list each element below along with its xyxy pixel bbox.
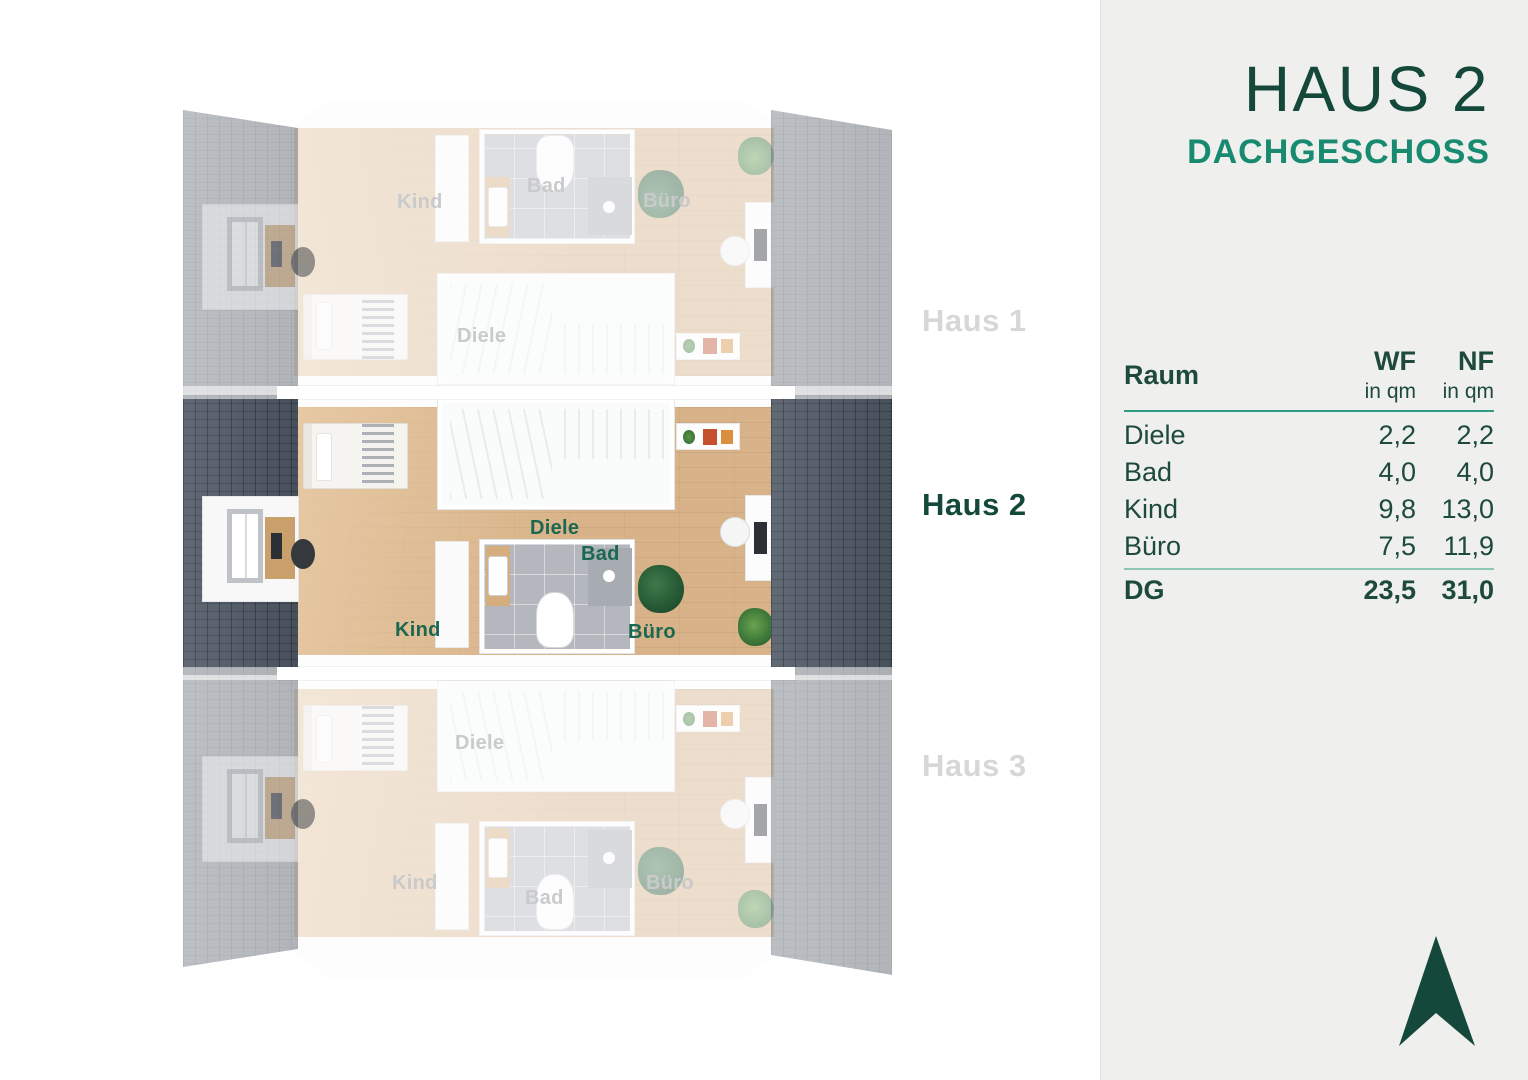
room-name: Diele	[1124, 420, 1321, 451]
nf-value: 2,2	[1416, 420, 1494, 451]
table-row: Bad 4,0 4,0	[1124, 454, 1494, 491]
table-row: Kind 9,8 13,0	[1124, 491, 1494, 528]
col-header-wf: WF in qm	[1321, 346, 1416, 404]
room-label-kind-haus2: Kind	[395, 619, 441, 642]
col-header-nf: NF in qm	[1416, 346, 1494, 404]
col-header-nf-unit: in qm	[1416, 380, 1494, 404]
page-title: HAUS 2	[1244, 52, 1490, 126]
table-body: Diele 2,2 2,2 Bad 4,0 4,0 Kind 9,8 13,0 …	[1124, 412, 1494, 568]
room-label-buero-haus2: Büro	[628, 621, 676, 644]
total-label: DG	[1124, 575, 1321, 606]
wf-value: 7,5	[1321, 531, 1416, 562]
room-label-kind-haus1: Kind	[397, 191, 443, 214]
page: Kind Bad Büro Diele Diele Bad Kind Büro …	[0, 0, 1528, 1080]
room-labels: Kind Bad Büro Diele Diele Bad Kind Büro …	[180, 95, 900, 985]
floorplan: Kind Bad Büro Diele Diele Bad Kind Büro …	[180, 95, 900, 985]
room-label-kind-haus3: Kind	[392, 872, 438, 895]
col-header-raum: Raum	[1124, 360, 1321, 391]
col-header-wf-unit: in qm	[1321, 380, 1416, 404]
nf-value: 4,0	[1416, 457, 1494, 488]
room-name: Büro	[1124, 531, 1321, 562]
room-label-bad-haus2: Bad	[581, 543, 620, 566]
total-wf: 23,5	[1321, 575, 1416, 606]
room-name: Bad	[1124, 457, 1321, 488]
house-label-haus2: Haus 2	[922, 487, 1027, 523]
col-header-wf-label: WF	[1321, 346, 1416, 377]
house-label-haus1: Haus 1	[922, 303, 1027, 339]
room-label-diele-haus3: Diele	[455, 732, 504, 755]
room-label-diele-haus1: Diele	[457, 325, 506, 348]
wf-value: 9,8	[1321, 494, 1416, 525]
table-row: Büro 7,5 11,9	[1124, 528, 1494, 565]
col-header-nf-label: NF	[1416, 346, 1494, 377]
wf-value: 2,2	[1321, 420, 1416, 451]
room-label-bad-haus3: Bad	[525, 887, 564, 910]
nf-value: 13,0	[1416, 494, 1494, 525]
room-name: Kind	[1124, 494, 1321, 525]
room-table: Raum WF in qm NF in qm Diele 2,2 2,2 Bad	[1124, 346, 1494, 610]
room-label-buero-haus1: Büro	[643, 190, 691, 213]
wf-value: 4,0	[1321, 457, 1416, 488]
room-label-buero-haus3: Büro	[646, 872, 694, 895]
table-header: Raum WF in qm NF in qm	[1124, 346, 1494, 412]
house-label-haus3: Haus 3	[922, 748, 1027, 784]
nf-value: 11,9	[1416, 531, 1494, 562]
room-label-diele-haus2: Diele	[530, 517, 579, 540]
info-panel: HAUS 2 DACHGESCHOSS Raum WF in qm NF in …	[1100, 0, 1528, 1080]
table-total-row: DG 23,5 31,0	[1124, 568, 1494, 610]
room-label-bad-haus1: Bad	[527, 175, 566, 198]
table-row: Diele 2,2 2,2	[1124, 417, 1494, 454]
total-nf: 31,0	[1416, 575, 1494, 606]
north-arrow-icon	[1399, 936, 1475, 1046]
page-subtitle: DACHGESCHOSS	[1187, 133, 1490, 172]
